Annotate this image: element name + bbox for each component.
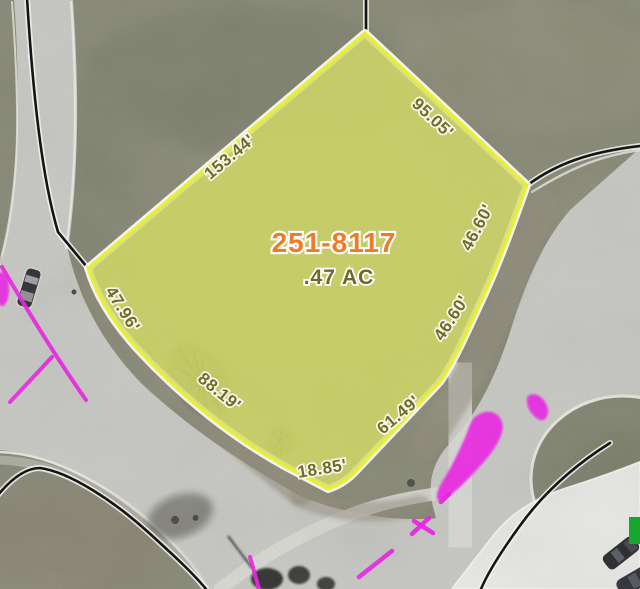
map-canvas[interactable]: 153.44' 95.05' 46.60' 46.60' 61.49' 18.8…	[0, 0, 640, 589]
street-sign-partial	[629, 517, 640, 544]
parcel-area-label: .47 AC	[304, 266, 375, 289]
parcel-id-label: 251-8117	[272, 227, 397, 258]
map-viewport[interactable]: 153.44' 95.05' 46.60' 46.60' 61.49' 18.8…	[0, 0, 640, 589]
